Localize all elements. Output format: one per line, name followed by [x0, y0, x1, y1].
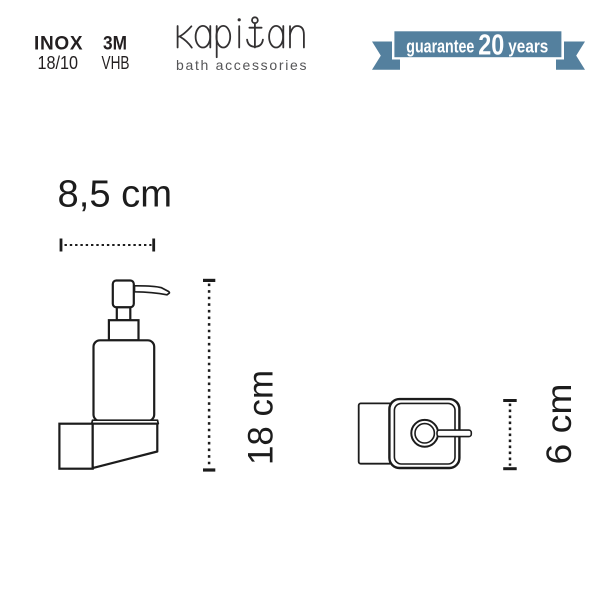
svg-text:8,5 cm: 8,5 cm [58, 174, 173, 216]
svg-text:years: years [508, 36, 548, 57]
svg-text:bath accessories: bath accessories [176, 57, 307, 73]
svg-text:VHB: VHB [102, 52, 130, 73]
svg-text:6 cm: 6 cm [540, 384, 579, 465]
svg-text:20: 20 [478, 29, 504, 61]
svg-text:18 cm: 18 cm [242, 370, 281, 465]
svg-text:guarantee: guarantee [406, 36, 474, 57]
svg-text:18/10: 18/10 [38, 52, 79, 73]
